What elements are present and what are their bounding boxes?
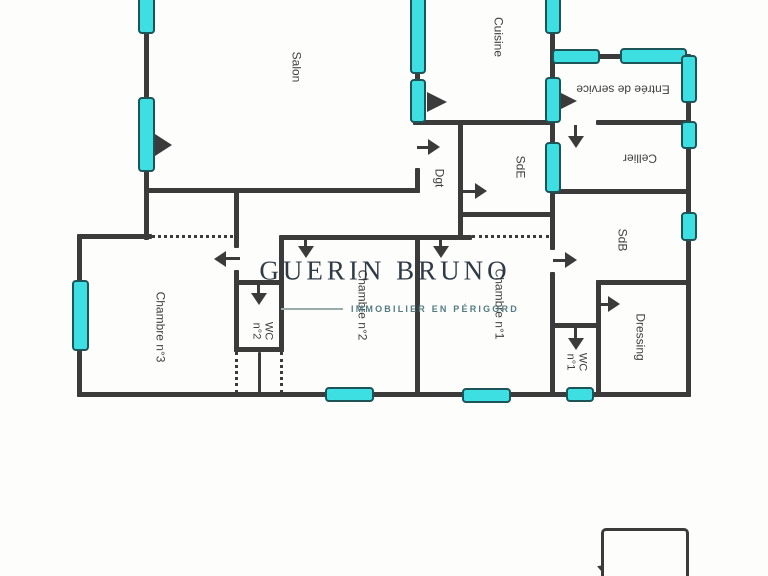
room-label-line: WC xyxy=(576,353,588,371)
room-label-line: n°1 xyxy=(564,353,576,371)
door-arrow-head xyxy=(428,139,440,155)
window-marker xyxy=(410,79,426,123)
window-marker xyxy=(462,388,511,403)
wall xyxy=(279,235,472,240)
room-label-dressing: Dressing xyxy=(634,313,647,360)
watermark-brand: GUERIN BRUNO xyxy=(259,256,510,287)
room-label-line: Cellier xyxy=(623,152,657,165)
dotted-wall xyxy=(472,235,549,238)
wall xyxy=(279,237,284,352)
wall xyxy=(77,234,152,239)
wall xyxy=(550,272,555,397)
wall xyxy=(77,392,691,397)
wall xyxy=(458,212,555,217)
door-swing-triangle xyxy=(427,92,447,112)
room-label-line: Salon xyxy=(290,52,303,83)
room-label-sde: SdE xyxy=(514,156,527,179)
wall xyxy=(596,280,691,285)
watermark-tagline-row: IMMOBILIER EN PÉRIGORD xyxy=(281,304,519,314)
room-label-line: Chambre n°3 xyxy=(154,292,167,363)
door-swing-triangle xyxy=(561,93,577,109)
window-marker xyxy=(545,142,561,193)
wall xyxy=(550,189,691,194)
room-label-line: Cuisine xyxy=(492,17,505,57)
watermark-tagline: IMMOBILIER EN PÉRIGORD xyxy=(351,304,519,314)
wall xyxy=(234,347,284,352)
room-label-line: WC xyxy=(262,322,274,340)
door-arrow-head xyxy=(475,183,487,199)
door-arrow-head xyxy=(568,136,584,148)
window-marker xyxy=(410,0,426,74)
door-arrow-head xyxy=(214,251,226,267)
window-marker xyxy=(620,48,687,64)
room-label-line: SdB xyxy=(616,229,629,252)
window-marker xyxy=(545,77,561,123)
dotted-wall xyxy=(152,235,233,238)
room-label-wc-2: WCn°2 xyxy=(250,322,273,340)
wall xyxy=(258,352,261,395)
room-label-salon: Salon xyxy=(290,52,303,83)
wall xyxy=(413,120,553,125)
wall xyxy=(596,120,691,125)
room-label-line: Dressing xyxy=(634,313,647,360)
door-arrow-head xyxy=(608,296,620,312)
room-label-wc-1: WCn°1 xyxy=(564,353,587,371)
dotted-wall xyxy=(280,352,283,393)
room-label-cuisine: Cuisine xyxy=(492,17,505,57)
window-marker xyxy=(681,55,697,103)
wall xyxy=(234,190,239,248)
window-marker xyxy=(138,0,155,34)
wall xyxy=(458,122,463,240)
door-arrow-head xyxy=(251,293,267,305)
room-label-entree-de-service: Entrée de service xyxy=(576,83,669,96)
room-label-chambre-3: Chambre n°3 xyxy=(154,292,167,363)
wall xyxy=(596,280,601,395)
garden-shed-box xyxy=(601,528,689,576)
wall xyxy=(144,188,420,193)
door-swing-triangle xyxy=(155,134,172,156)
room-label-line: n°2 xyxy=(250,322,262,340)
room-label-cellier: Cellier xyxy=(623,152,657,165)
watermark-divider-line xyxy=(281,308,343,310)
window-marker xyxy=(545,0,561,34)
window-marker xyxy=(681,121,697,149)
window-marker xyxy=(552,49,600,64)
dotted-wall xyxy=(235,352,238,393)
door-arrow-head xyxy=(565,252,577,268)
room-label-dgt: Dgt xyxy=(433,169,446,188)
floor-plan: SalonCuisineEntrée de serviceCellierSdED… xyxy=(0,0,768,576)
room-label-line: Dgt xyxy=(433,169,446,188)
window-marker xyxy=(681,212,697,241)
door-arrow-stem xyxy=(224,258,240,261)
window-marker xyxy=(566,387,594,402)
room-label-line: Entrée de service xyxy=(576,83,669,96)
window-marker xyxy=(138,97,155,172)
room-label-sdb: SdB xyxy=(616,229,629,252)
door-arrow-head xyxy=(568,338,584,350)
window-marker xyxy=(325,387,374,402)
room-label-line: SdE xyxy=(514,156,527,179)
window-marker xyxy=(72,280,89,351)
